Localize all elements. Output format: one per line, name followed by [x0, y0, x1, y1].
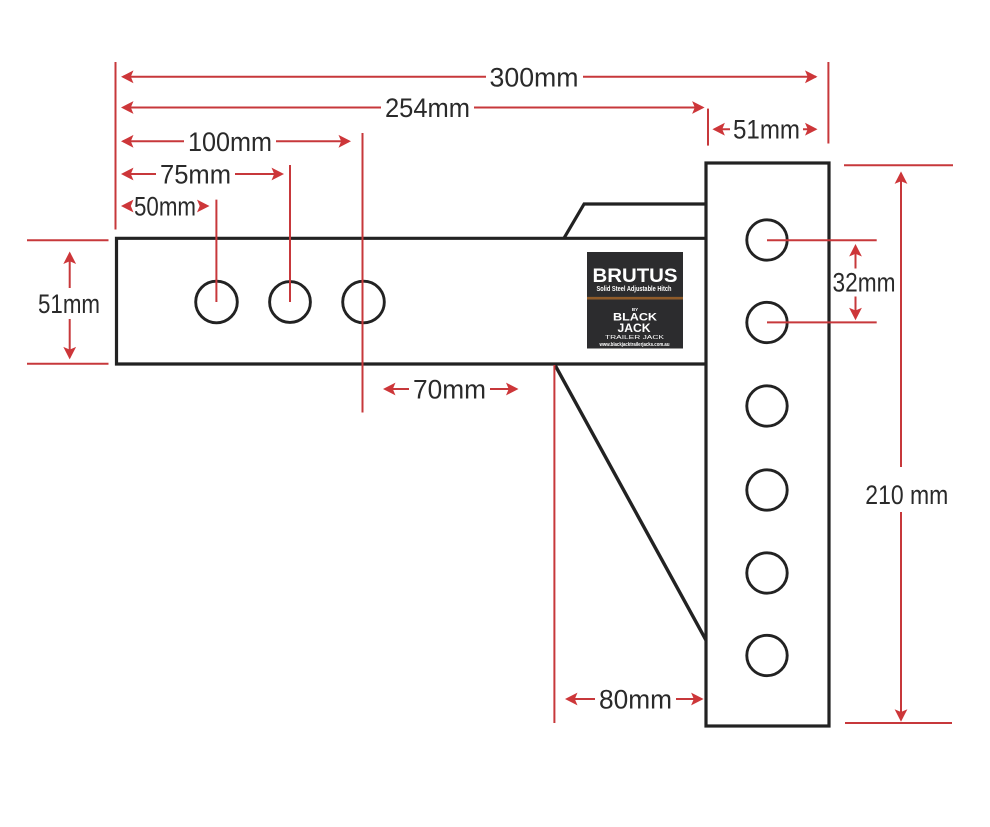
svg-text:JACK: JACK — [618, 321, 651, 335]
svg-text:Solid Steel Adjustable Hitch: Solid Steel Adjustable Hitch — [597, 286, 672, 293]
svg-text:www.blackjacktrailerjacks.com.: www.blackjacktrailerjacks.com.au — [599, 342, 670, 348]
svg-text:80mm: 80mm — [599, 685, 672, 715]
svg-text:300mm: 300mm — [490, 62, 579, 92]
svg-text:70mm: 70mm — [413, 375, 486, 405]
svg-text:BRUTUS: BRUTUS — [593, 265, 678, 287]
svg-text:32mm: 32mm — [833, 268, 896, 298]
svg-text:254mm: 254mm — [385, 93, 470, 123]
svg-text:75mm: 75mm — [160, 160, 231, 190]
svg-text:50mm: 50mm — [134, 192, 196, 222]
svg-text:210 mm: 210 mm — [865, 480, 948, 510]
svg-text:51mm: 51mm — [38, 289, 100, 319]
svg-text:100mm: 100mm — [188, 127, 272, 157]
svg-text:TRAILER JACK: TRAILER JACK — [605, 335, 664, 341]
svg-text:51mm: 51mm — [733, 115, 800, 145]
